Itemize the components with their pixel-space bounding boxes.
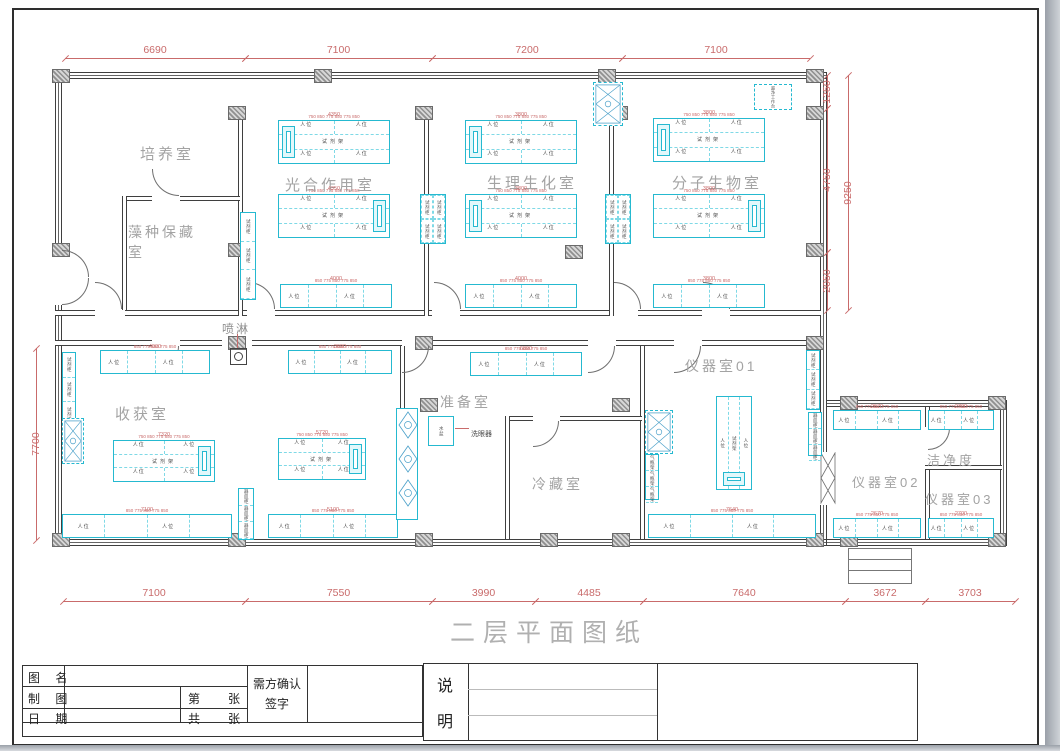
fume-hood	[593, 82, 623, 126]
lab-bench-island: 750 850 775 850 775 850 人位 人位 试剂架 人位 人位	[278, 120, 390, 164]
micro-dimension-label: 2700	[946, 404, 976, 411]
lab-bench-row: 850 775 850 775 850 人位 人位	[470, 352, 582, 376]
dimension-line	[643, 601, 845, 602]
field-date: 日 期	[28, 710, 73, 727]
field-sheet-total: 共张	[188, 710, 240, 727]
dimension-label: 7700	[30, 420, 42, 468]
column	[52, 69, 70, 83]
sink	[469, 126, 482, 158]
wall-segment	[122, 196, 127, 310]
page-edge-right	[1045, 0, 1060, 751]
lab-bench-row: 850 775 850 775 850 人位 人位	[653, 284, 765, 308]
room-label: 洁净度	[927, 450, 1060, 490]
lab-bench-row: 850 775 850 775 850 人位 人位	[928, 410, 994, 430]
dimension-line	[535, 601, 643, 602]
column	[806, 243, 824, 257]
spray-label: 喷淋	[222, 320, 262, 334]
micro-dimension-label: 3800	[506, 186, 536, 193]
column	[612, 533, 630, 547]
lab-bench-island: 750 850 775 850 775 850 人位 人位 试剂架 人位 人位	[113, 440, 215, 482]
cabinet-strip: 试剂柜试剂柜试剂柜	[62, 352, 76, 428]
dimension-label: 3990	[432, 587, 535, 599]
wall-segment	[180, 196, 240, 201]
column	[228, 106, 246, 120]
fume-hood	[645, 410, 673, 454]
dimension-line	[63, 601, 245, 602]
spray-leader-line	[237, 334, 238, 348]
room-label: 藻种保藏室	[128, 222, 208, 262]
lab-bench-island-vertical: 人位 试剂架 人位	[716, 396, 752, 490]
vessel-strip: 器皿柜器皿柜器皿柜	[808, 412, 822, 456]
dimension-label: 7100	[63, 587, 245, 599]
sink	[282, 126, 295, 158]
micro-dimension-label: 4000	[321, 276, 351, 283]
room-label: 培养室	[140, 143, 280, 183]
lab-bench-row: 850 775 850 775 850 人位 人位	[62, 514, 232, 538]
wall-segment	[55, 72, 62, 250]
column	[806, 336, 824, 350]
column	[612, 398, 630, 412]
dimension-label: 7100	[622, 44, 810, 56]
column	[415, 106, 433, 120]
double-door	[820, 452, 836, 505]
room-label: 分子生物室	[672, 172, 812, 212]
dimension-line	[65, 58, 245, 59]
micro-dimension-label: 3690	[325, 344, 355, 351]
notes-label-1: 说	[437, 672, 453, 696]
micro-dimension-label: 3800	[694, 110, 724, 117]
dimension-label: 4750	[821, 156, 833, 204]
stairs	[848, 548, 912, 584]
cabinet-strip: 试剂柜试剂柜试剂柜	[240, 212, 256, 300]
lab-bench-row: 850 775 850 775 850 人位 人位	[280, 284, 392, 308]
wall-segment	[55, 310, 95, 316]
lab-bench-island: 750 850 775 850 775 850 人位 人位 试剂架 人位 人位	[653, 118, 765, 162]
micro-dimension-label: 7320	[149, 432, 179, 439]
dimension-line	[622, 58, 810, 59]
micro-dimension-label: 2670	[862, 511, 892, 518]
wall-segment	[702, 340, 821, 346]
column	[540, 533, 558, 547]
wall-segment	[616, 340, 674, 346]
spray-fixture	[230, 348, 247, 365]
micro-dimension-label: 6890	[511, 346, 541, 353]
room-label: 冷藏室	[532, 474, 672, 514]
room-label: 仪器室01	[685, 356, 825, 396]
micro-dimension-label: 3800	[694, 186, 724, 193]
clean-bench-box: 超净工作台	[754, 84, 792, 110]
sink	[469, 200, 482, 232]
sink	[198, 446, 211, 476]
micro-dimension-label: 4350	[319, 186, 349, 193]
dimension-label: 2050	[821, 257, 833, 305]
micro-dimension-label: 7640	[717, 507, 747, 514]
column	[314, 69, 332, 83]
dimension-label: 7200	[432, 44, 622, 56]
room-label: 收获室	[115, 403, 255, 443]
field-drafted-by: 制 图	[28, 690, 73, 707]
dimension-label: 7100	[245, 44, 432, 56]
dimension-label: 9250	[842, 169, 854, 217]
dimension-line	[845, 601, 925, 602]
micro-dimension-label: 3800	[506, 112, 536, 119]
column	[415, 533, 433, 547]
micro-dimension-label: 5720	[307, 430, 337, 437]
sink	[657, 124, 670, 156]
lab-bench-row: 850 775 850 775 850 人位 人位	[465, 284, 577, 308]
drawing-title: 二层平面图纸	[450, 613, 648, 649]
micro-dimension-label: 2670	[862, 404, 892, 411]
drawing-sheet: 750 850 775 850 775 850 人位 人位 试剂架 人位 人位 …	[0, 0, 1060, 751]
vessel-strip: 器皿柜器皿柜器皿柜	[238, 488, 254, 540]
dimension-line	[432, 58, 622, 59]
lab-bench-island: 750 850 775 850 775 850 人位 人位 试剂架 人位 人位	[278, 438, 366, 480]
sink	[349, 444, 362, 474]
micro-dimension-label: 4350	[319, 112, 349, 119]
wall-segment	[460, 310, 610, 316]
lab-bench-island: 750 850 775 850 775 850 人位 人位 试剂架 人位 人位	[465, 120, 577, 164]
micro-dimension-label: 5100	[318, 507, 348, 514]
room-label: 准备室	[440, 392, 580, 432]
wall-segment	[125, 310, 247, 316]
dimension-label: 3703	[925, 587, 1015, 599]
lab-bench-row: 850 775 850 775 850 人位 人位	[833, 518, 921, 538]
wall-segment	[505, 416, 510, 539]
field-drawing-name: 图 名	[28, 669, 73, 686]
dimension-line	[245, 58, 432, 59]
micro-dimension-label: 2700	[946, 511, 976, 518]
wall-segment	[638, 310, 702, 316]
lab-bench-row: 850 775 850 775 850 人位 人位	[288, 350, 392, 374]
micro-dimension-label: 4000	[506, 276, 536, 283]
lab-bench-row: 850 775 850 775 850 人位 人位	[268, 514, 398, 538]
column	[565, 245, 583, 259]
sink	[723, 472, 745, 486]
wall-segment	[55, 72, 827, 79]
wall-segment	[730, 310, 821, 316]
dimension-line	[925, 601, 1015, 602]
drying-rack-column	[396, 408, 418, 520]
dimension-line	[432, 601, 535, 602]
micro-dimension-label: 3800	[694, 276, 724, 283]
room-label: 光合作用室	[285, 174, 425, 214]
field-confirm-sign: 需方确认 签字	[247, 674, 307, 714]
dimension-line	[245, 601, 432, 602]
dimension-label: 7640	[643, 587, 845, 599]
column	[598, 69, 616, 83]
wall-segment	[275, 310, 432, 316]
notes-label-2: 明	[437, 708, 453, 732]
room-label: 仪器室03	[925, 489, 1060, 529]
dimension-label: 7550	[245, 587, 432, 599]
micro-dimension-label: 4000	[140, 344, 170, 351]
dimension-label: 3672	[845, 587, 925, 599]
page-edge-bottom	[0, 745, 1060, 751]
wall-segment	[55, 539, 1007, 546]
dimension-label: 4485	[535, 587, 643, 599]
micro-dimension-label: 7100	[132, 507, 162, 514]
lab-bench-row: 850 775 850 775 850 人位 人位	[100, 350, 210, 374]
lab-bench-row: 850 775 850 775 850 人位 人位	[648, 514, 816, 538]
field-sheet-no: 第张	[188, 690, 240, 707]
lab-bench-row: 850 775 850 775 850 人位 人位	[833, 410, 921, 430]
fume-hood	[62, 418, 84, 464]
dimension-label: 6690	[65, 44, 245, 56]
column	[420, 398, 438, 412]
